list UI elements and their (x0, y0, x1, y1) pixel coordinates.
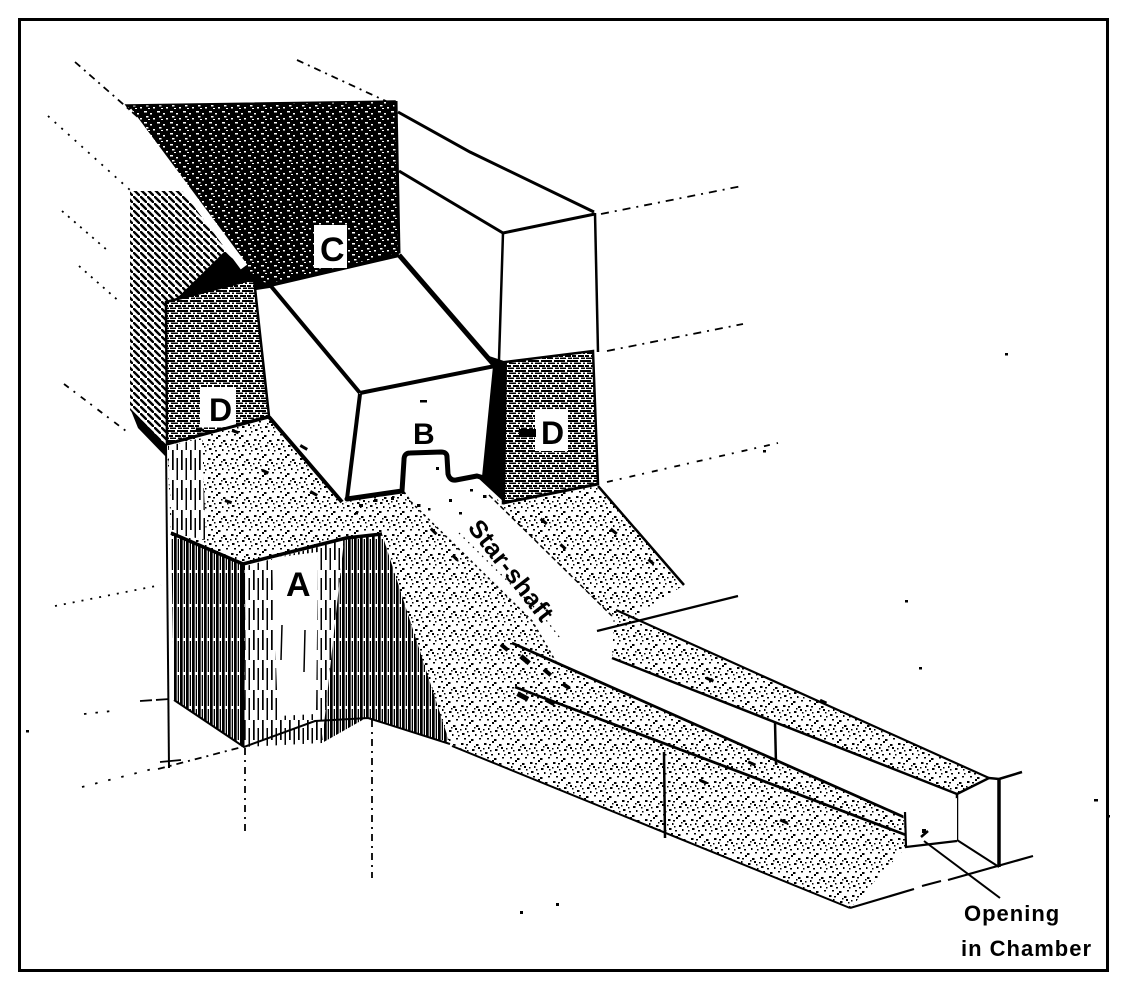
svg-text:in Chamber: in Chamber (961, 936, 1092, 961)
svg-text:B: B (413, 418, 435, 451)
svg-text:D: D (209, 392, 232, 428)
svg-text:A: A (286, 566, 311, 604)
svg-text:Opening: Opening (964, 901, 1060, 926)
svg-text:D: D (541, 415, 564, 451)
svg-text:C: C (320, 231, 345, 269)
